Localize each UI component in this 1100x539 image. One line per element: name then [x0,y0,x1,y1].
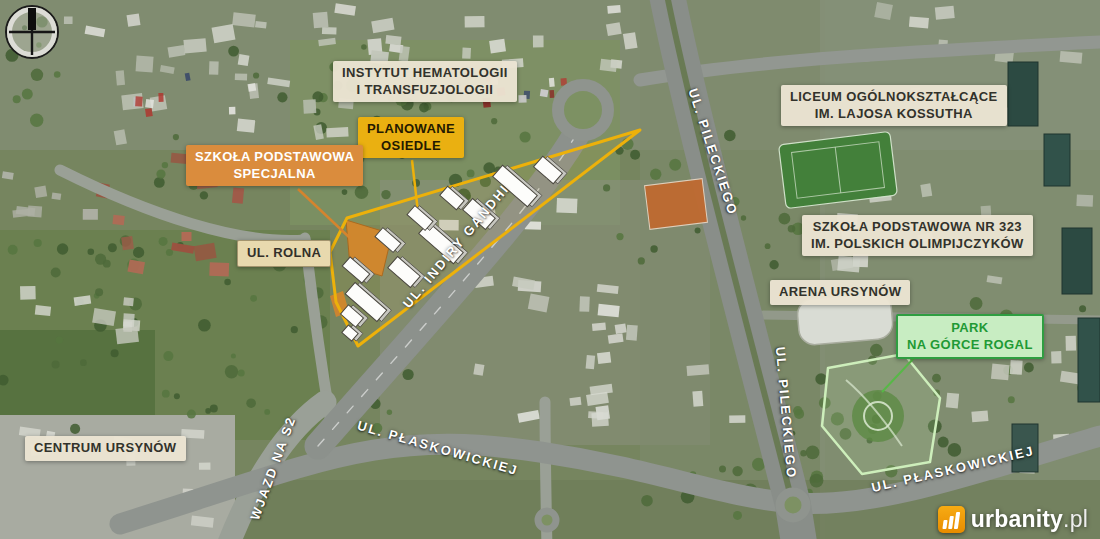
label-line: IM. POLSKICH OLIMPIJCZYKÓW [811,236,1024,253]
label-ul-rolna: UL. ROLNA [237,240,331,267]
label-instytut-hematologii: INSTYTUT HEMATOLOGII I TRANSFUZJOLOGII [333,61,517,102]
watermark-brand: urbanity [971,506,1063,532]
label-line: ARENA URSYNÓW [779,284,901,301]
label-liceum-kossutha: LICEUM OGÓLNOKSZTAŁCĄCE IM. LAJOSA KOSSU… [781,85,1007,126]
label-line: NA GÓRCE ROGAL [907,337,1033,354]
label-line: INSTYTUT HEMATOLOGII [342,65,508,82]
label-line: CENTRUM URSYNÓW [34,440,177,457]
label-line: OSIEDLE [367,138,455,155]
label-centrum-ursynow: CENTRUM URSYNÓW [25,436,186,461]
label-line: LICEUM OGÓLNOKSZTAŁCĄCE [790,89,998,106]
label-line: PARK [907,320,1033,337]
label-line: IM. LAJOSA KOSSUTHA [790,106,998,123]
map-canvas: INSTYTUT HEMATOLOGII I TRANSFUZJOLOGII P… [0,0,1100,539]
label-szkola-323: SZKOŁA PODSTAWOWA NR 323 IM. POLSKICH OL… [802,215,1033,256]
watermark-tld: .pl [1063,506,1088,532]
compass-north-icon [2,2,62,62]
label-line: PLANOWANE [367,121,455,138]
label-line: SPECJALNA [195,166,354,183]
label-line: I TRANSFUZJOLOGII [342,82,508,99]
label-planowane-osiedle: PLANOWANE OSIEDLE [358,117,464,158]
label-line: SZKOŁA PODSTAWOWA [195,149,354,166]
label-line: SZKOŁA PODSTAWOWA NR 323 [811,219,1024,236]
label-szkola-specjalna: SZKOŁA PODSTAWOWA SPECJALNA [186,145,363,186]
label-park-rogal: PARK NA GÓRCE ROGAL [896,314,1044,359]
watermark-text: urbanity.pl [971,506,1088,533]
urbanity-building-bars-icon [938,506,965,533]
label-arena-ursynow: ARENA URSYNÓW [770,280,910,305]
label-line: UL. ROLNA [247,245,321,262]
urbanity-watermark: urbanity.pl [938,506,1088,533]
